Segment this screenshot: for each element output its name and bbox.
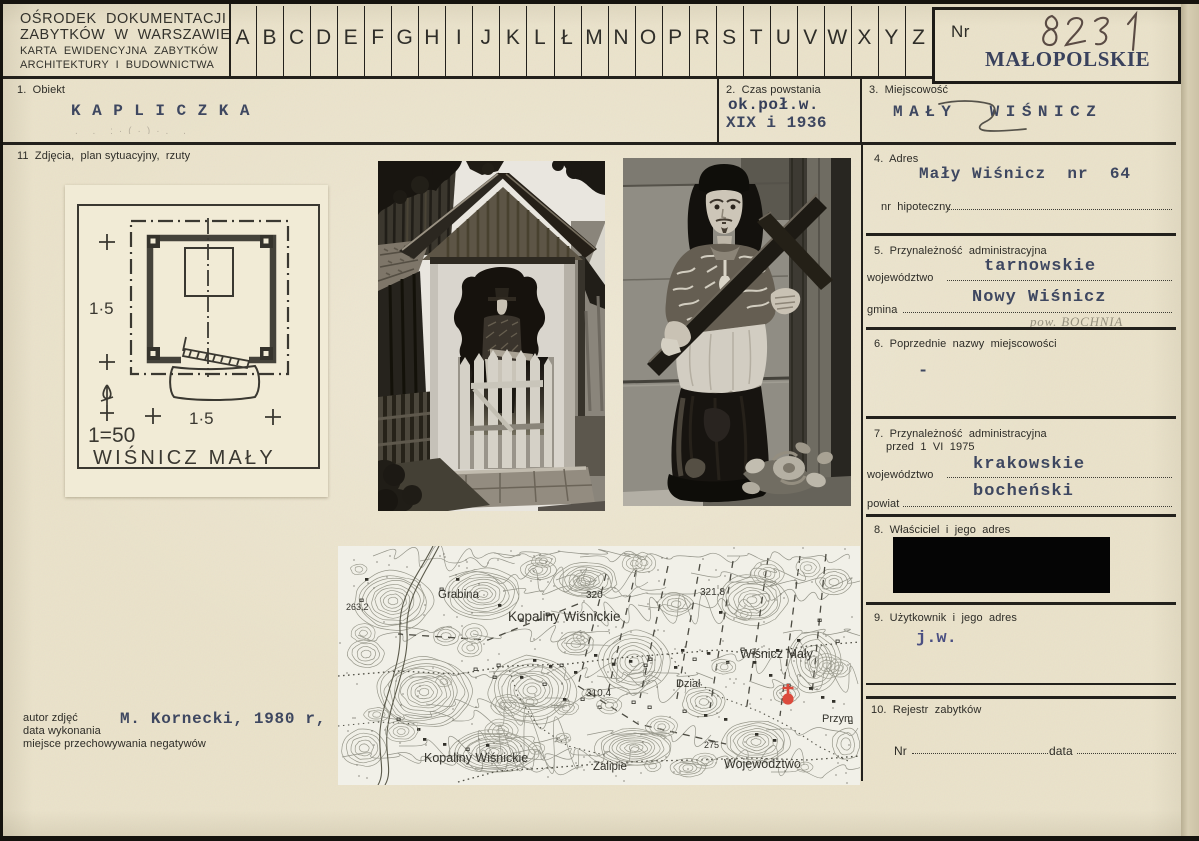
svg-text:WIŚNICZ MAŁY: WIŚNICZ MAŁY <box>93 445 276 469</box>
svg-text:Województwo: Województwo <box>724 757 801 771</box>
svg-text:Dział: Dział <box>676 678 701 690</box>
svg-text:Grabina: Grabina <box>438 589 480 601</box>
svg-text:275: 275 <box>704 740 719 750</box>
svg-text:1·5: 1·5 <box>89 299 114 318</box>
svg-text:320: 320 <box>586 590 603 601</box>
svg-text:Kopaliny Wiśnickie: Kopaliny Wiśnickie <box>424 751 528 765</box>
svg-text:Wiśnicz Mały: Wiśnicz Mały <box>740 647 814 661</box>
svg-text:Zalipie: Zalipie <box>593 761 627 773</box>
svg-text:263,2: 263,2 <box>346 602 369 612</box>
svg-text:Kopaliny Wiśnickie: Kopaliny Wiśnickie <box>508 609 621 624</box>
svg-text:Przym: Przym <box>822 713 853 725</box>
svg-text:321,8: 321,8 <box>700 587 725 598</box>
svg-text:1=50: 1=50 <box>88 424 135 447</box>
svg-text:1·5: 1·5 <box>189 409 214 428</box>
